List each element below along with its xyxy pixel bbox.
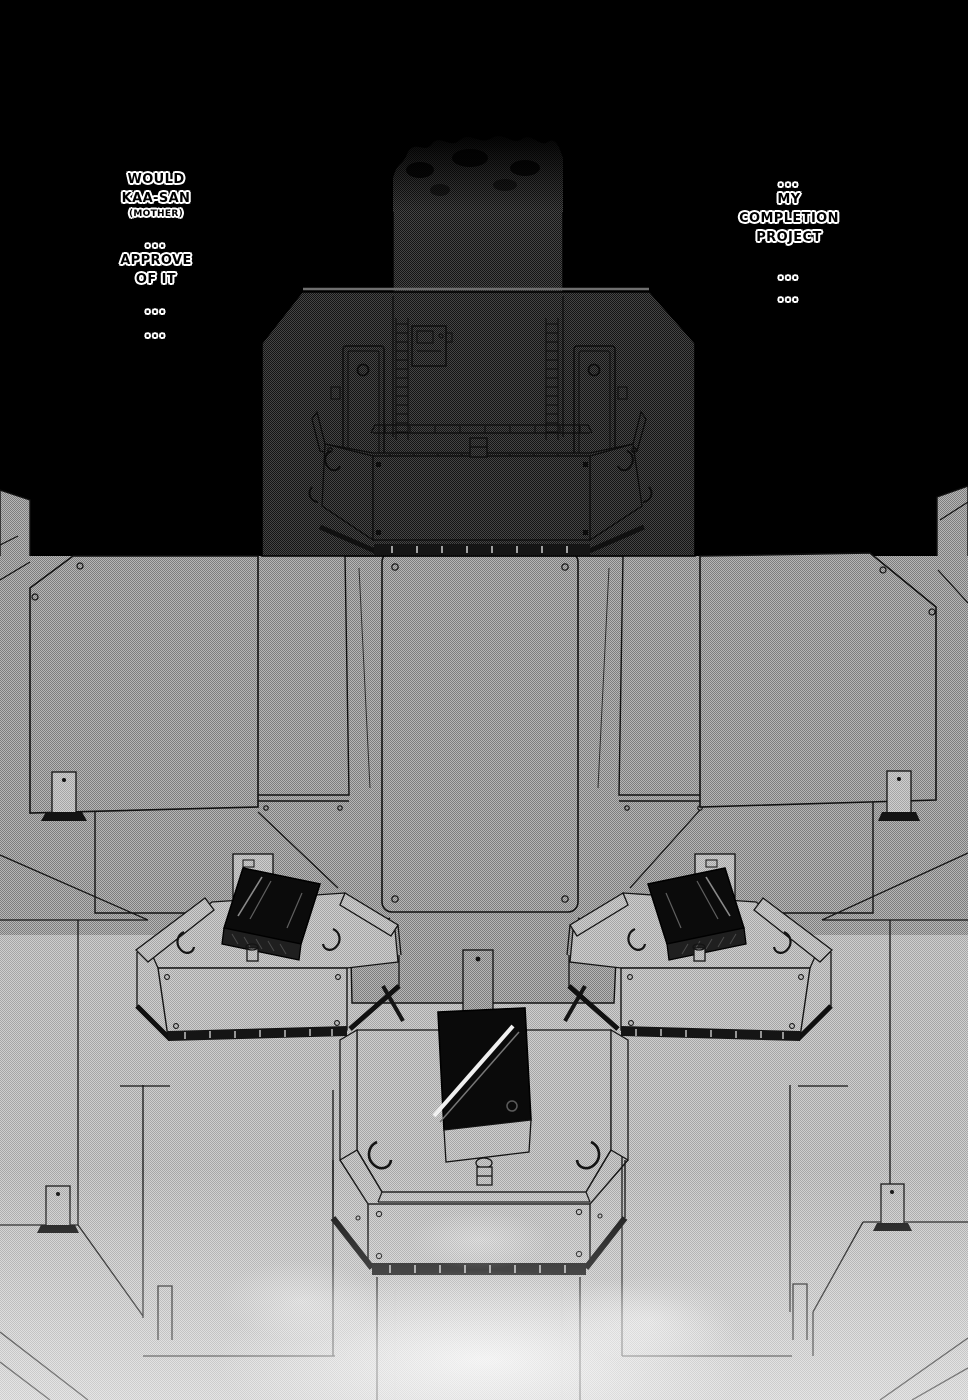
speech-line: OF IT [86, 270, 226, 289]
speech-line: PROJECT [719, 228, 859, 247]
speech-line: APPROVE [86, 251, 226, 270]
speech-ellipsis: ... [719, 176, 859, 188]
speech-ellipsis: ... [719, 269, 859, 281]
right-wall [700, 553, 936, 807]
console-screen-center [438, 1008, 531, 1130]
speech-line: (MOTHER) [86, 208, 226, 221]
speech-line: WOULD [86, 170, 226, 189]
speech-line: KAA-SAN [86, 189, 226, 208]
speech-line: MY [719, 190, 859, 209]
speech-ellipsis: ... [719, 291, 859, 303]
manga-page: WOULD KAA-SAN (MOTHER) ... APPROVE OF IT… [0, 0, 968, 1400]
speech-ellipsis: ... [86, 327, 226, 339]
speech-left: WOULD KAA-SAN (MOTHER) ... APPROVE OF IT… [86, 170, 226, 339]
bottom-light-fade [0, 1170, 968, 1400]
speech-right: ... MY COMPLETION PROJECT ... ... [719, 176, 859, 303]
speech-line: COMPLETION [719, 209, 859, 228]
speech-ellipsis: ... [86, 237, 226, 249]
speech-ellipsis: ... [86, 303, 226, 315]
